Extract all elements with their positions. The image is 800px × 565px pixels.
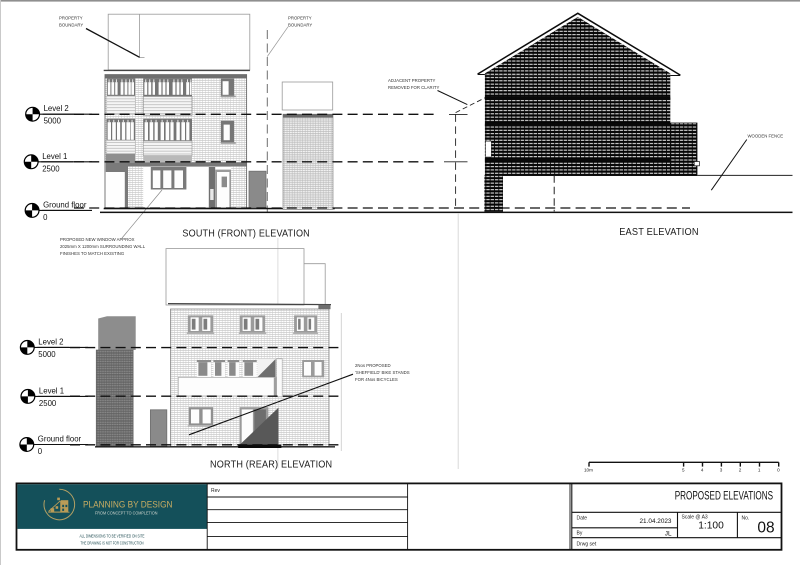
svg-text:2500: 2500 bbox=[39, 399, 57, 408]
svg-text:ALL DIMENSIONS TO BE VERIFIED: ALL DIMENSIONS TO BE VERIFIED ON SITE bbox=[80, 534, 145, 539]
svg-text:0: 0 bbox=[38, 447, 43, 456]
svg-text:2: 2 bbox=[739, 467, 742, 472]
svg-text:1: 1 bbox=[758, 467, 761, 472]
svg-text:3: 3 bbox=[720, 467, 723, 472]
svg-text:Level 2: Level 2 bbox=[44, 104, 69, 113]
svg-text:0: 0 bbox=[43, 213, 48, 222]
svg-text:By: By bbox=[577, 531, 583, 537]
svg-text:5000: 5000 bbox=[38, 350, 56, 359]
svg-text:FINISHES TO MATCH EXISTING: FINISHES TO MATCH EXISTING bbox=[60, 251, 125, 256]
svg-text:EAST ELEVATION: EAST ELEVATION bbox=[619, 227, 699, 238]
svg-text:PLANNING BY DESIGN: PLANNING BY DESIGN bbox=[83, 500, 173, 510]
svg-text:Rev: Rev bbox=[211, 488, 220, 494]
svg-text:Ground floor: Ground floor bbox=[38, 435, 82, 444]
svg-text:0: 0 bbox=[777, 467, 780, 472]
svg-text:2Nos PROPOSED: 2Nos PROPOSED bbox=[355, 363, 391, 368]
svg-text:10m: 10m bbox=[584, 467, 593, 472]
svg-text:PROPOSED NEW WINDOW APPROX: PROPOSED NEW WINDOW APPROX bbox=[60, 237, 135, 242]
svg-text:No.: No. bbox=[742, 515, 750, 521]
svg-text:Drwg set: Drwg set bbox=[577, 541, 597, 547]
svg-text:Date: Date bbox=[577, 515, 588, 521]
svg-text:WOODEN FENCE: WOODEN FENCE bbox=[748, 134, 784, 139]
svg-text:NORTH (REAR) ELEVATION: NORTH (REAR) ELEVATION bbox=[210, 460, 332, 471]
svg-text:BOUNDARY: BOUNDARY bbox=[288, 23, 312, 28]
svg-text:THE DRAWING IS NOT FOR CONSTRU: THE DRAWING IS NOT FOR CONSTRUCTION bbox=[81, 540, 144, 545]
svg-text:Level 1: Level 1 bbox=[42, 152, 67, 161]
svg-text:FROM CONCEPT TO COMPLETION: FROM CONCEPT TO COMPLETION bbox=[95, 510, 158, 515]
svg-text:5: 5 bbox=[682, 467, 685, 472]
svg-text:4: 4 bbox=[701, 467, 704, 472]
svg-text:21.04.2023: 21.04.2023 bbox=[640, 518, 672, 525]
svg-text:1:100: 1:100 bbox=[698, 521, 724, 532]
svg-text:PROPOSED ELEVATIONS: PROPOSED ELEVATIONS bbox=[675, 489, 774, 502]
svg-text:REMOVED FOR CLARITY: REMOVED FOR CLARITY bbox=[388, 85, 439, 90]
svg-text:2025mm X 1200mm SURROUNDING W: 2025mm X 1200mm SURROUNDING WALL bbox=[60, 244, 146, 249]
svg-text:FOR 4Nos BICYCLES: FOR 4Nos BICYCLES bbox=[355, 377, 398, 382]
svg-text:5000: 5000 bbox=[44, 117, 62, 126]
svg-text:2500: 2500 bbox=[42, 164, 60, 173]
svg-text:08: 08 bbox=[757, 519, 774, 536]
svg-text:BOUNDARY: BOUNDARY bbox=[59, 23, 83, 28]
svg-text:Level 1: Level 1 bbox=[39, 386, 64, 395]
svg-text:'SHEFFIELD' BIKE STANDS: 'SHEFFIELD' BIKE STANDS bbox=[355, 370, 410, 375]
svg-text:Level 2: Level 2 bbox=[38, 337, 63, 346]
svg-text:PROPERTY: PROPERTY bbox=[59, 16, 83, 21]
svg-text:ADJACENT PROPERTY: ADJACENT PROPERTY bbox=[388, 78, 435, 83]
svg-text:PROPERTY: PROPERTY bbox=[288, 16, 312, 21]
svg-text:JL: JL bbox=[665, 530, 672, 537]
svg-text:SOUTH (FRONT) ELEVATION: SOUTH (FRONT) ELEVATION bbox=[182, 228, 310, 239]
